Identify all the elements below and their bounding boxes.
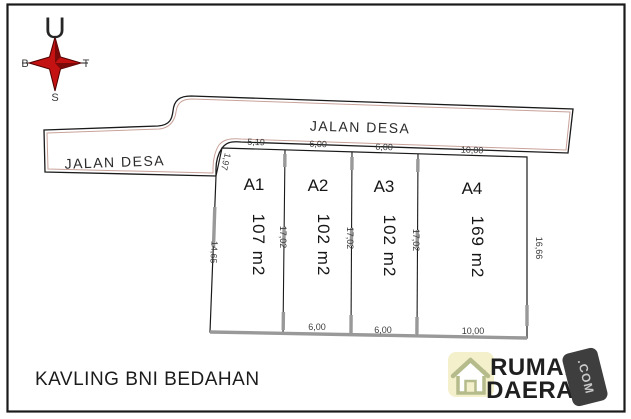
compass-south-label: S <box>51 92 58 104</box>
plot-label-a2: A2 <box>308 176 329 195</box>
dim-top-a2: 6,00 <box>309 139 327 150</box>
road-label-top: JALAN DESA <box>310 118 411 137</box>
dim-divider-2: 17,02 <box>345 227 355 250</box>
dim-bottom-a4: 10,00 <box>462 326 485 336</box>
plot-area-a4: 169 m2 <box>468 216 487 279</box>
plot-label-a4: A4 <box>462 179 483 198</box>
plot-area-a3: 102 m2 <box>380 215 399 278</box>
plot-label-a1: A1 <box>244 175 265 194</box>
plot-area-a2: 102 m2 <box>314 214 333 277</box>
dim-divider-3: 17,02 <box>411 229 421 252</box>
dim-right-a4: 16,66 <box>534 237 544 260</box>
page-title: KAVLING BNI BEDAHAN <box>35 369 260 390</box>
site-plan-drawing: U B T S JALAN DESA JALAN DESA <box>0 0 631 419</box>
dim-top-a1: 5,19 <box>247 137 265 148</box>
compass-north-label: U <box>44 12 66 45</box>
dim-bottom-a2: 6,00 <box>308 322 326 332</box>
compass-east-label: T <box>83 58 90 70</box>
dim-top-a4: 10,00 <box>461 145 484 156</box>
plot-area-a1: 107 m2 <box>249 214 268 277</box>
plot-label-a3: A3 <box>374 177 395 196</box>
plot-block: 5,19 6,00 6,00 10,00 6,00 6,00 10,00 17,… <box>208 137 544 338</box>
compass-west-label: B <box>21 58 28 70</box>
dim-divider-1: 17,02 <box>278 226 288 249</box>
dim-top-a3: 6,00 <box>375 142 393 153</box>
dim-bottom-a3: 6,00 <box>374 325 392 335</box>
site-plan-page: U B T S JALAN DESA JALAN DESA <box>0 0 631 419</box>
dim-left-lower: 14,65 <box>208 241 219 264</box>
